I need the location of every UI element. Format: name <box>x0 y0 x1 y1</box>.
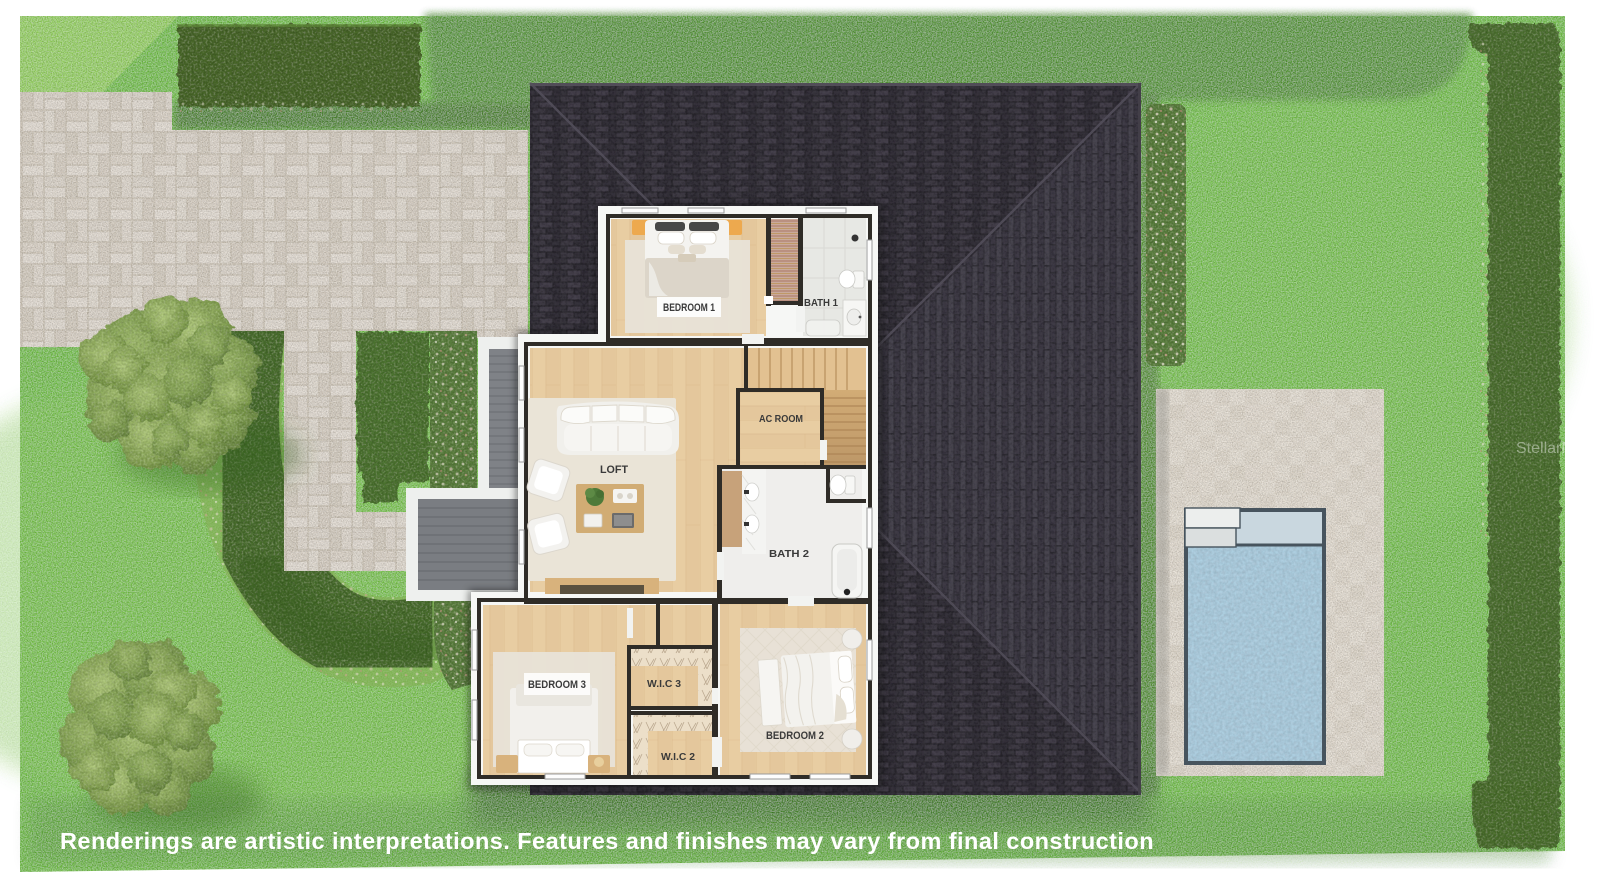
svg-text:BEDROOM 3: BEDROOM 3 <box>528 679 586 691</box>
svg-text:AC ROOM: AC ROOM <box>759 414 803 425</box>
svg-text:W.I.C 3: W.I.C 3 <box>647 679 681 690</box>
svg-text:StellarMLS: StellarMLS <box>1516 440 1594 457</box>
svg-text:W.I.C 2: W.I.C 2 <box>661 752 695 763</box>
svg-text:BATH 1: BATH 1 <box>804 298 838 309</box>
svg-text:Renderings are artistic interp: Renderings are artistic interpretations.… <box>60 828 1154 854</box>
svg-text:BEDROOM 1: BEDROOM 1 <box>663 302 715 314</box>
svg-text:LOFT: LOFT <box>600 464 628 476</box>
svg-text:BATH 2: BATH 2 <box>769 548 809 560</box>
svg-text:BEDROOM 2: BEDROOM 2 <box>766 730 824 742</box>
